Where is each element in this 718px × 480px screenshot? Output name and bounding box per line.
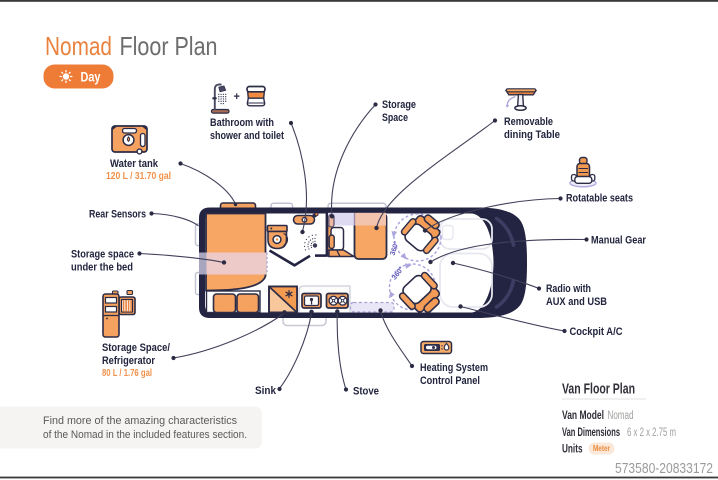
svg-text:Meter: Meter bbox=[593, 443, 611, 453]
svg-text:Refrigerator: Refrigerator bbox=[102, 355, 156, 367]
svg-text:+: + bbox=[234, 91, 240, 103]
svg-text:Cockpit A/C: Cockpit A/C bbox=[570, 326, 623, 338]
svg-text:120 L / 31.70 gal: 120 L / 31.70 gal bbox=[106, 171, 171, 182]
svg-text:Van Model: Van Model bbox=[562, 410, 604, 422]
svg-text:Nomad: Nomad bbox=[45, 31, 112, 61]
svg-text:Day: Day bbox=[81, 69, 101, 85]
svg-text:Storage Space/: Storage Space/ bbox=[102, 342, 170, 354]
svg-text:Units: Units bbox=[562, 444, 583, 456]
svg-text:Rear Sensors: Rear Sensors bbox=[89, 209, 146, 221]
svg-text:Storage: Storage bbox=[382, 99, 416, 111]
svg-text:Control Panel: Control Panel bbox=[420, 375, 480, 387]
svg-text:6 x 2 x 2.75 m: 6 x 2 x 2.75 m bbox=[627, 427, 676, 439]
svg-text:dining Table: dining Table bbox=[504, 129, 560, 141]
svg-text:Van Dimensions: Van Dimensions bbox=[562, 427, 620, 439]
svg-text:Manual Gear: Manual Gear bbox=[591, 235, 647, 247]
svg-text:Bathroom with: Bathroom with bbox=[210, 117, 274, 129]
svg-text:shower and toilet: shower and toilet bbox=[210, 130, 284, 142]
svg-text:Stove: Stove bbox=[353, 386, 379, 398]
svg-text:Heating System: Heating System bbox=[420, 362, 488, 374]
svg-text:under the bed: under the bed bbox=[71, 262, 133, 274]
svg-text:of the Nomad in the included f: of the Nomad in the included features se… bbox=[43, 429, 247, 441]
svg-text:80 L / 1.76 gal: 80 L / 1.76 gal bbox=[102, 368, 152, 379]
svg-text:Sink: Sink bbox=[255, 385, 277, 397]
svg-text:573580-20833172: 573580-20833172 bbox=[615, 461, 713, 477]
svg-text:Space: Space bbox=[382, 112, 408, 124]
svg-text:Van Floor Plan: Van Floor Plan bbox=[562, 382, 635, 398]
svg-text:Water tank: Water tank bbox=[110, 158, 159, 170]
svg-text:AUX and USB: AUX and USB bbox=[546, 296, 607, 308]
svg-text:Rotatable seats: Rotatable seats bbox=[566, 193, 633, 205]
svg-text:Floor Plan: Floor Plan bbox=[120, 31, 218, 61]
svg-text:Radio with: Radio with bbox=[546, 283, 591, 295]
svg-text:Nomad: Nomad bbox=[608, 410, 634, 422]
svg-text:Storage space: Storage space bbox=[71, 249, 134, 261]
svg-text:Find more of the amazing chara: Find more of the amazing characteristics bbox=[43, 415, 237, 427]
svg-text:Removable: Removable bbox=[504, 116, 553, 128]
